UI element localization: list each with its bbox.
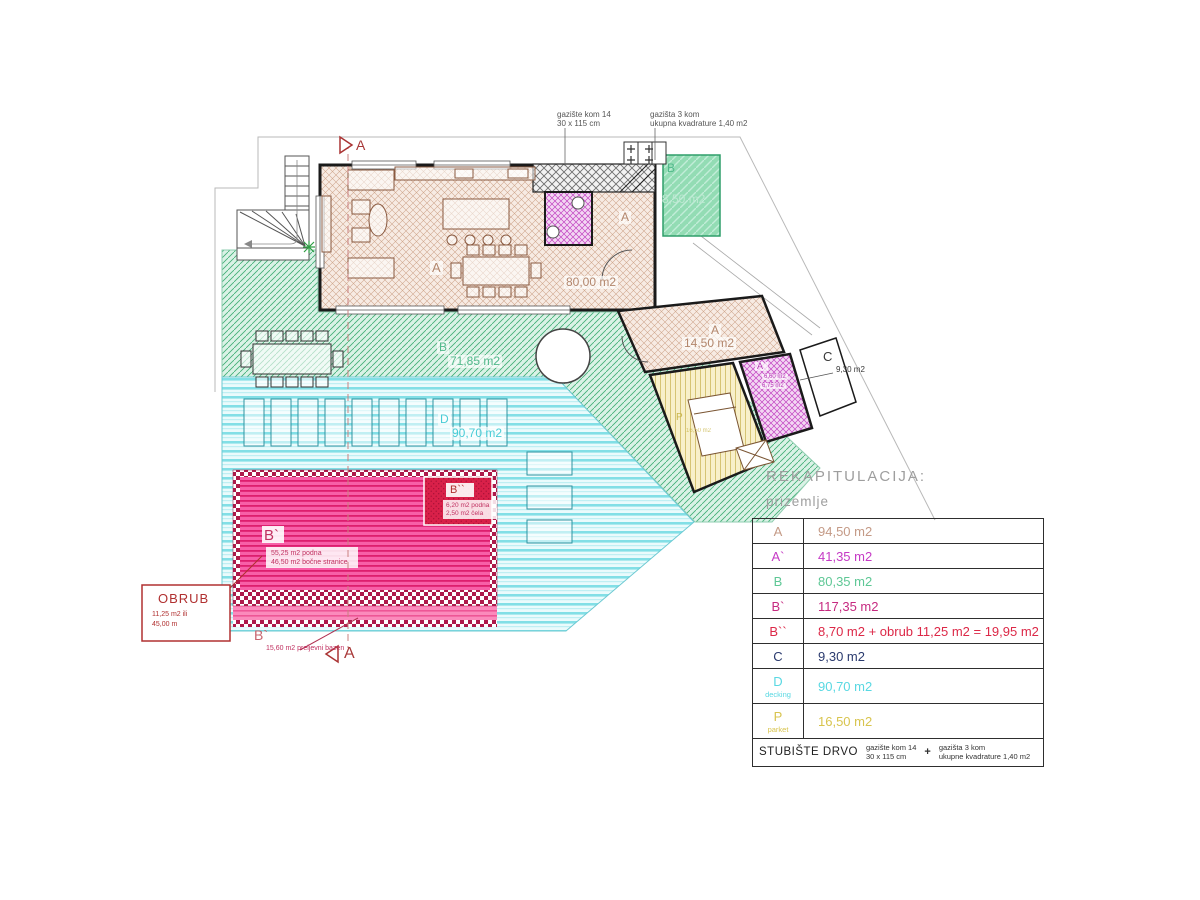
living-area-label: 80,00 m2 xyxy=(564,276,618,289)
bedroom-area-label: 14,50 m2 xyxy=(682,337,736,350)
outdoor-dining-table xyxy=(241,331,343,387)
zone-label: B` xyxy=(753,594,804,619)
zone-label: B`` xyxy=(753,619,804,644)
obrub-line1: 11,25 m2 ili xyxy=(152,611,187,618)
parquet-area-label: 16,50 m2 xyxy=(686,428,711,434)
legend-row-b: B 80,35 m2 xyxy=(753,569,1044,594)
zone-value: 8,70 m2 + obrub 11,25 m2 = 19,95 m2 xyxy=(804,619,1044,644)
zone-value: 16,50 m2 xyxy=(804,704,1044,739)
zone-value: 41,35 m2 xyxy=(804,544,1044,569)
section-marker-top xyxy=(340,137,352,153)
recap-table: A 94,50 m2 A` 41,35 m2 B 80,35 m2 B` 117… xyxy=(752,518,1044,767)
pool-head-line2-label: 2,50 m2 čela xyxy=(446,511,483,518)
decking-zone-label: D xyxy=(438,413,451,426)
zone-label: D decking xyxy=(753,669,804,704)
wc-room xyxy=(545,192,592,245)
zone-value: 80,35 m2 xyxy=(804,569,1044,594)
zone-value: 90,70 m2 xyxy=(804,669,1044,704)
legend-footer-row: STUBIŠTE DRVO gazište kom 1430 x 115 cm … xyxy=(753,739,1044,767)
plus-sign: + xyxy=(924,746,930,758)
stairs-spec-left: gazište kom 1430 x 115 cm xyxy=(866,743,916,762)
entry-zone-label: A xyxy=(619,211,631,224)
section-a-bottom-label: A xyxy=(344,646,355,663)
living-room xyxy=(316,161,655,314)
floor-plan-sheet: A A 80,00 m2 B 71,85 m2 B 8,50 m2 D 90,7… xyxy=(0,0,1200,900)
plant-icon xyxy=(303,241,315,253)
tree-circle xyxy=(536,329,590,383)
zone-label: P parket xyxy=(753,704,804,739)
overflow-zone-label: B` xyxy=(254,628,268,643)
pool-line1-label: 55,25 m2 podna xyxy=(271,550,322,557)
recap-subtitle: prizemlje xyxy=(766,494,1044,509)
legend-row-b-double-prime: B`` 8,70 m2 + obrub 11,25 m2 = 19,95 m2 xyxy=(753,619,1044,644)
zone-value: 94,50 m2 xyxy=(804,519,1044,544)
stairs-note-left-2: 30 x 115 cm xyxy=(557,120,600,128)
legend-row-p: P parket 16,50 m2 xyxy=(753,704,1044,739)
upper-terrace-area-label: 8,50 m2 xyxy=(662,193,705,206)
zone-label: B xyxy=(753,569,804,594)
section-a-top-label: A xyxy=(356,138,365,153)
zone-value: 117,35 m2 xyxy=(804,594,1044,619)
terrace-zone-label: B xyxy=(437,341,449,354)
terrace-c-area-label: 9,30 m2 xyxy=(836,366,865,374)
winder-stairs xyxy=(237,156,309,260)
recap-title: REKAPITULACIJA: xyxy=(766,468,1044,485)
legend-row-c: C 9,30 m2 xyxy=(753,644,1044,669)
stairs-note-right-2: ukupna kvadrature 1,40 m2 xyxy=(650,120,747,128)
zone-value: 9,30 m2 xyxy=(804,644,1044,669)
upper-terrace-zone-label: B xyxy=(667,162,675,175)
overflow-channel xyxy=(233,606,497,620)
stairs-spec-right: gazišta 3 komukupne kvadrature 1,40 m2 xyxy=(939,743,1030,762)
parquet-zone-label: P xyxy=(676,413,683,424)
bedroom-zone-label: A xyxy=(709,324,721,337)
stairs-material-label: STUBIŠTE DRVO xyxy=(759,746,858,758)
bath-area1-label: 6,60 m2 xyxy=(762,374,788,380)
legend-row-a: A 94,50 m2 xyxy=(753,519,1044,544)
pool-line2-label: 46,50 m2 bočne stranice xyxy=(271,559,348,566)
decking-area-label: 90,70 m2 xyxy=(450,427,504,440)
zone-label: C xyxy=(753,644,804,669)
zone-label: A xyxy=(753,519,804,544)
bath-area2-label: 6,75 m2 xyxy=(760,383,786,389)
pool-zone-label: B` xyxy=(264,528,279,544)
bath-zone-label: A` xyxy=(755,362,768,371)
overflow-note-label: 15,60 m2 preljevni bazen xyxy=(266,645,344,652)
zone-label: A` xyxy=(753,544,804,569)
recap-panel: REKAPITULACIJA: prizemlje A 94,50 m2 A` … xyxy=(752,468,1044,767)
terrace-area-label: 71,85 m2 xyxy=(448,355,502,368)
obrub-line2: 45,00 m xyxy=(152,621,177,628)
legend-row-d: D decking 90,70 m2 xyxy=(753,669,1044,704)
obrub-title: OBRUB xyxy=(158,592,209,606)
pool-head-line1-label: 6,20 m2 podna xyxy=(446,503,489,510)
terrace-c-zone-label: C xyxy=(823,350,832,364)
living-zone-label: A xyxy=(430,261,443,275)
legend-row-a-prime: A` 41,35 m2 xyxy=(753,544,1044,569)
pool-head-zone-label: B`` xyxy=(450,485,465,497)
legend-row-b-prime: B` 117,35 m2 xyxy=(753,594,1044,619)
exterior-steps xyxy=(624,142,666,164)
